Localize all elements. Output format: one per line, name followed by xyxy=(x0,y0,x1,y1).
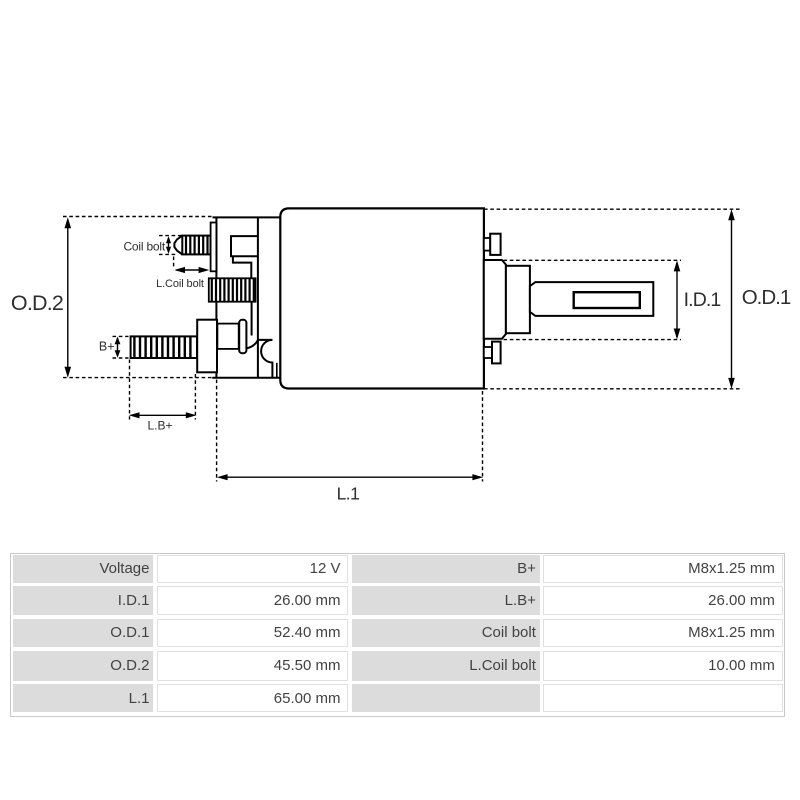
svg-text:L.Coil bolt: L.Coil bolt xyxy=(156,278,204,290)
svg-text:O.D.2: O.D.2 xyxy=(11,291,63,315)
svg-text:Coil bolt: Coil bolt xyxy=(123,240,165,254)
svg-text:I.D.1: I.D.1 xyxy=(684,289,721,311)
svg-text:B+: B+ xyxy=(99,340,115,354)
svg-text:L.B+: L.B+ xyxy=(147,419,172,433)
svg-text:L.1: L.1 xyxy=(337,484,360,504)
svg-text:O.D.1: O.D.1 xyxy=(742,286,791,309)
